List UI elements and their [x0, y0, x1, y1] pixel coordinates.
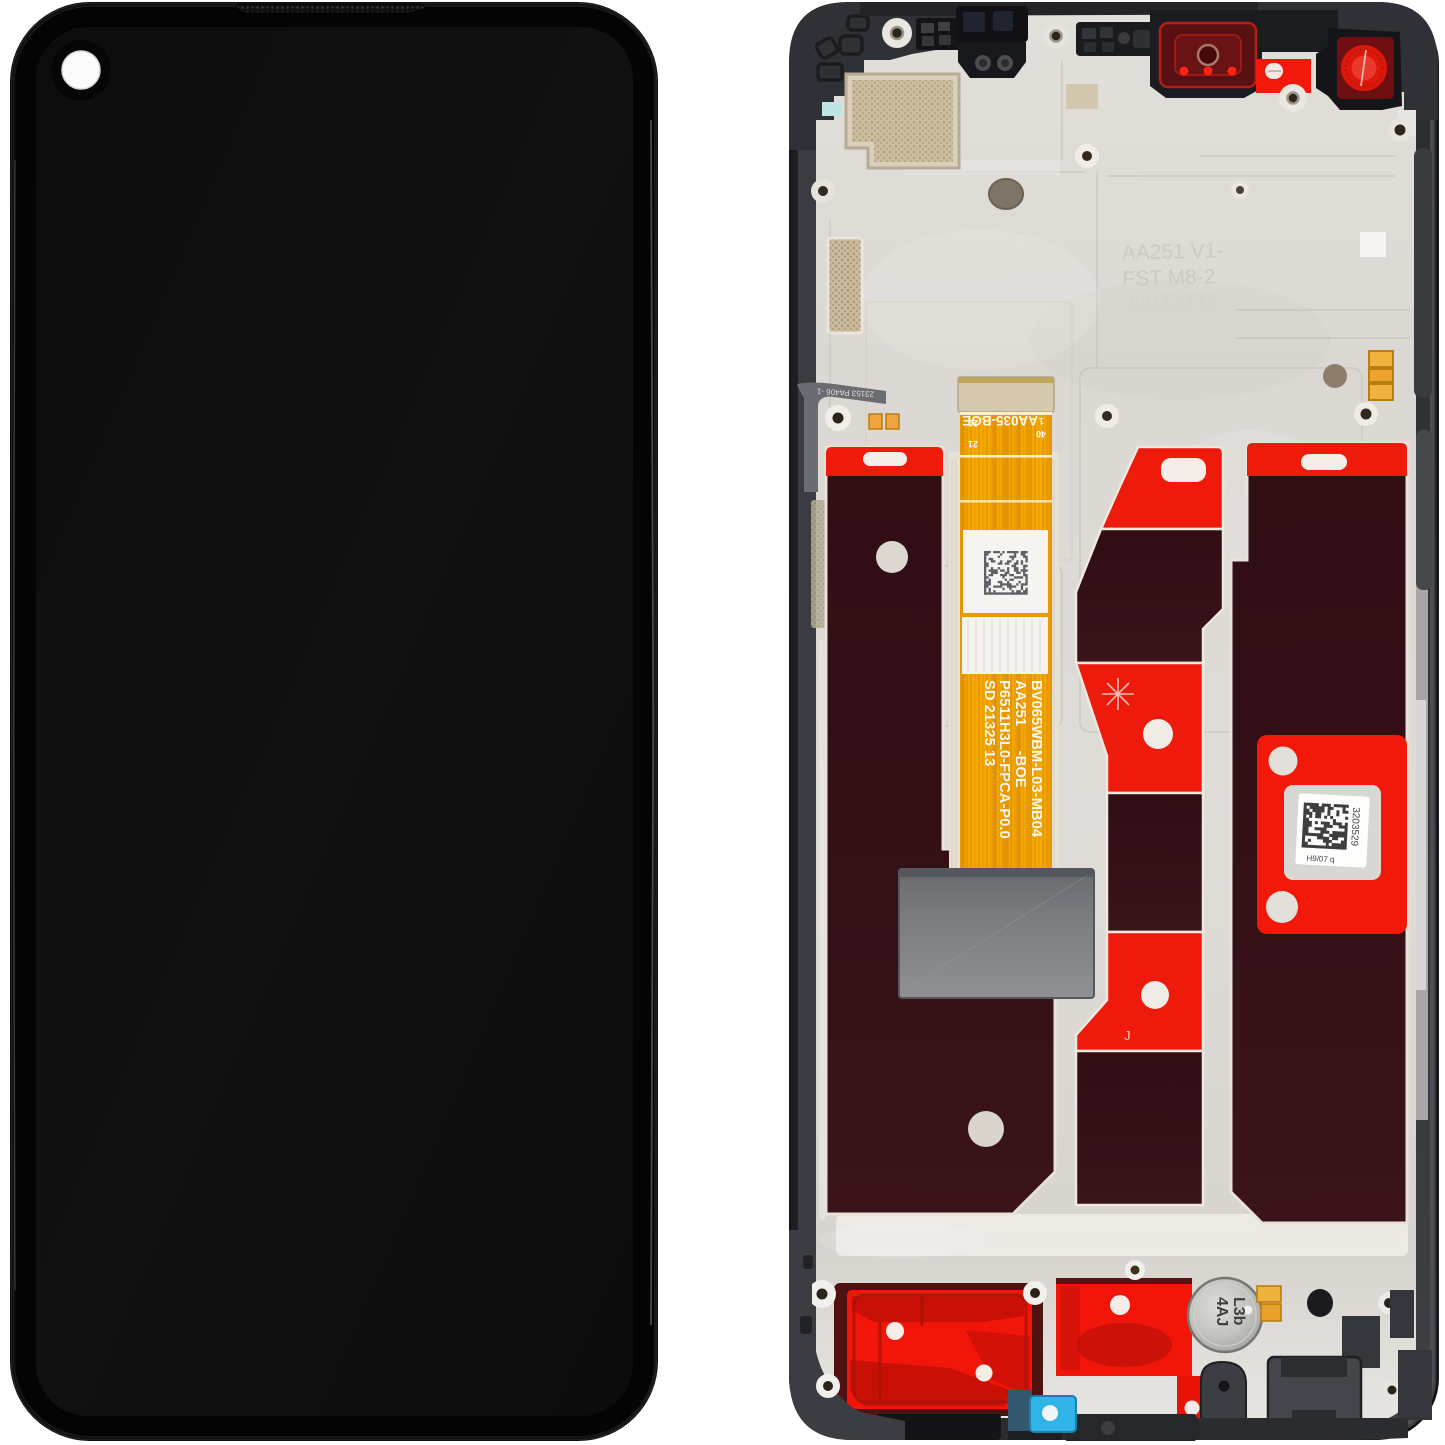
svg-text:21: 21 [968, 439, 978, 449]
svg-text:H9/07 q: H9/07 q [1306, 854, 1334, 864]
svg-text:FST M8-2: FST M8-2 [1122, 265, 1216, 290]
svg-text:L3b: L3b [1230, 1297, 1247, 1326]
svg-text:BV065WBM-L03-MB04: BV065WBM-L03-MB04 [1028, 680, 1044, 838]
svg-text:3203529: 3203529 [1348, 807, 1361, 847]
svg-text:40: 40 [1036, 429, 1046, 439]
svg-text:P6511H3L0-FPCA-P0.0: P6511H3L0-FPCA-P0.0 [996, 680, 1012, 839]
svg-text:36033333: 36033333 [1123, 289, 1217, 314]
svg-text:20: 20 [968, 418, 978, 428]
svg-text:J: J [1124, 1028, 1131, 1043]
svg-text:SD 21325 13: SD 21325 13 [981, 680, 997, 766]
svg-text:4AJ: 4AJ [1213, 1297, 1230, 1326]
svg-text:AA251 V1-: AA251 V1- [1121, 239, 1223, 265]
svg-text:1: 1 [1039, 416, 1044, 426]
svg-text:AA251 -BOE: AA251 -BOE [1012, 680, 1028, 788]
